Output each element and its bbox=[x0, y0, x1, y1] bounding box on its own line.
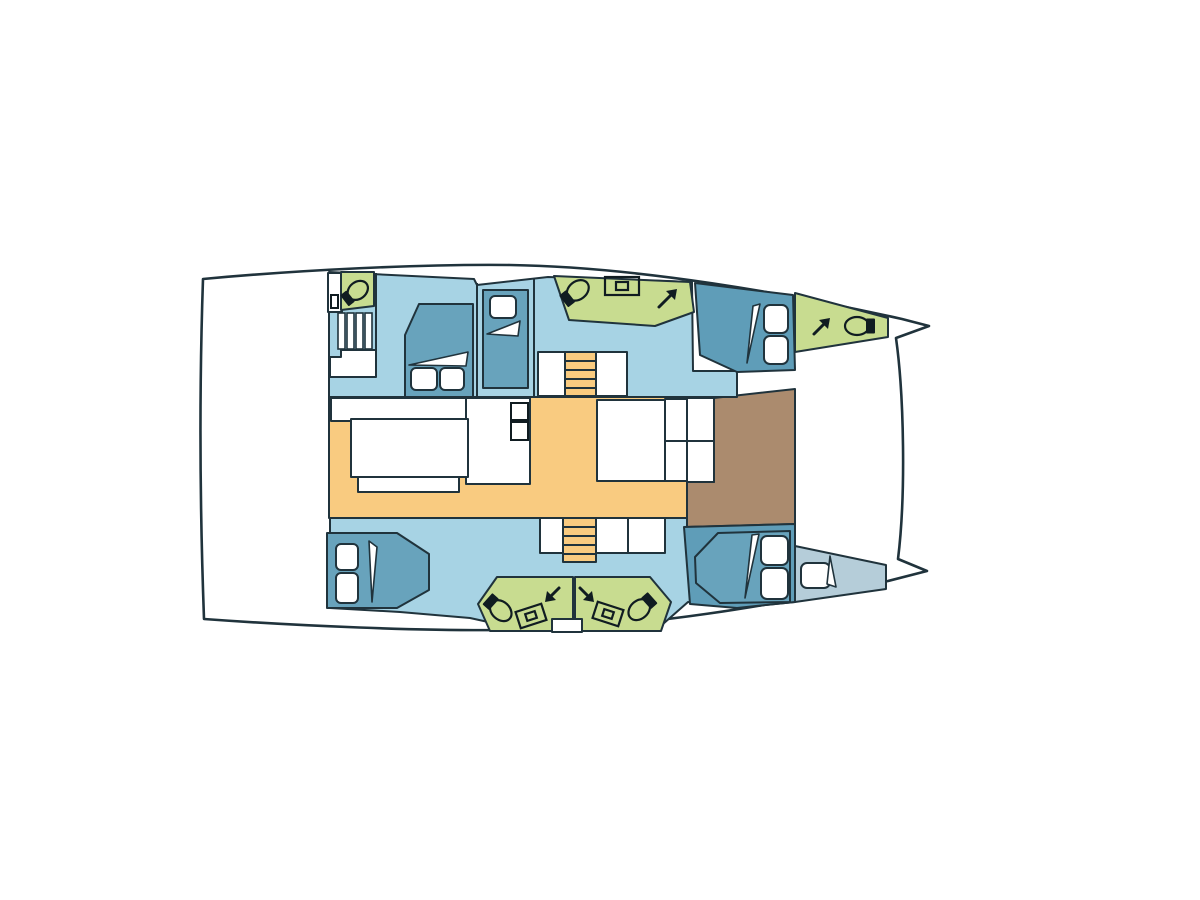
port-aft-cabin bbox=[405, 304, 473, 397]
salon-table bbox=[351, 419, 468, 477]
staircase-port bbox=[538, 352, 627, 396]
starboard-aft-cabin bbox=[327, 533, 429, 608]
stair-icon bbox=[565, 352, 596, 396]
pillow bbox=[440, 368, 464, 390]
stair-rail bbox=[596, 518, 628, 553]
pillow bbox=[411, 368, 437, 390]
bathroom-step bbox=[552, 619, 582, 632]
starboard-forward-cabin bbox=[684, 524, 795, 608]
port-mid-berth bbox=[483, 290, 528, 388]
stair-rail bbox=[596, 352, 627, 396]
pillow bbox=[761, 568, 788, 599]
pillow bbox=[336, 573, 358, 603]
port-forward-cabin bbox=[695, 283, 795, 372]
stair-rail bbox=[540, 518, 563, 553]
salon-furniture bbox=[331, 398, 714, 492]
stair-icon bbox=[563, 518, 596, 562]
galley-stove-icon bbox=[511, 422, 528, 440]
pillow bbox=[764, 305, 788, 333]
canvas bbox=[0, 0, 1200, 900]
starboard-forward-bathroom bbox=[575, 577, 671, 631]
stair-rail bbox=[538, 352, 565, 396]
dinette-table bbox=[597, 400, 667, 481]
pillow bbox=[336, 544, 358, 570]
aft-cockpit bbox=[210, 285, 325, 615]
faucet-icon bbox=[331, 295, 338, 308]
pillow bbox=[490, 296, 516, 318]
port-forward-head bbox=[554, 276, 694, 326]
foredeck bbox=[800, 360, 895, 515]
galley-sink-icon bbox=[511, 403, 528, 420]
pillow bbox=[764, 336, 788, 364]
galley-counter bbox=[331, 398, 481, 421]
catamaran-floor-plan bbox=[0, 0, 1200, 900]
pillow bbox=[801, 563, 830, 588]
pillow bbox=[761, 536, 788, 565]
salon-bench bbox=[358, 477, 459, 492]
stair-rail bbox=[628, 518, 665, 553]
